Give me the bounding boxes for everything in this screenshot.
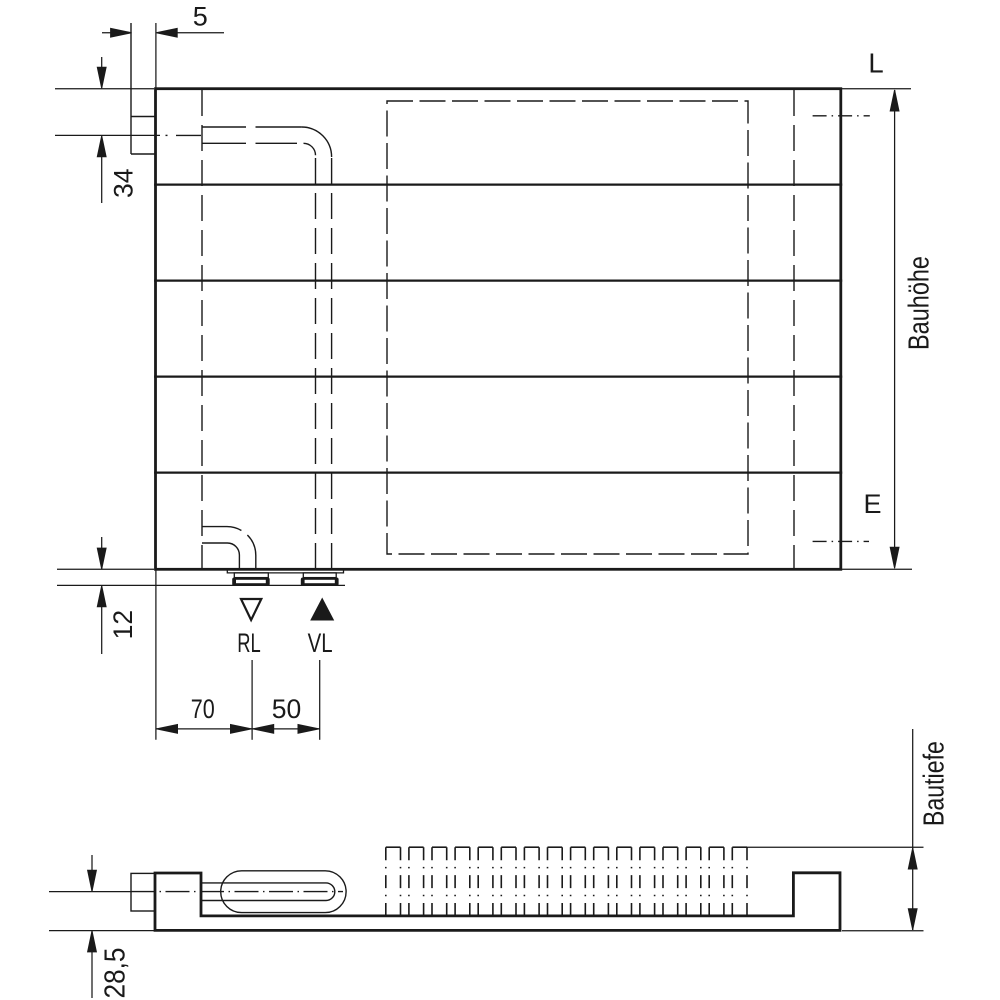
svg-text:Bauhöhe: Bauhöhe <box>904 256 936 350</box>
svg-text:5: 5 <box>193 1 208 31</box>
svg-text:34: 34 <box>109 169 139 198</box>
svg-text:12: 12 <box>108 610 138 639</box>
svg-text:RL: RL <box>237 628 261 658</box>
svg-text:L: L <box>868 48 883 79</box>
svg-text:28,5: 28,5 <box>100 948 132 999</box>
svg-text:Bautiefe: Bautiefe <box>919 741 951 826</box>
svg-text:VL: VL <box>308 628 333 658</box>
svg-text:E: E <box>863 489 881 519</box>
svg-text:70: 70 <box>191 694 215 724</box>
svg-text:50: 50 <box>272 694 301 724</box>
